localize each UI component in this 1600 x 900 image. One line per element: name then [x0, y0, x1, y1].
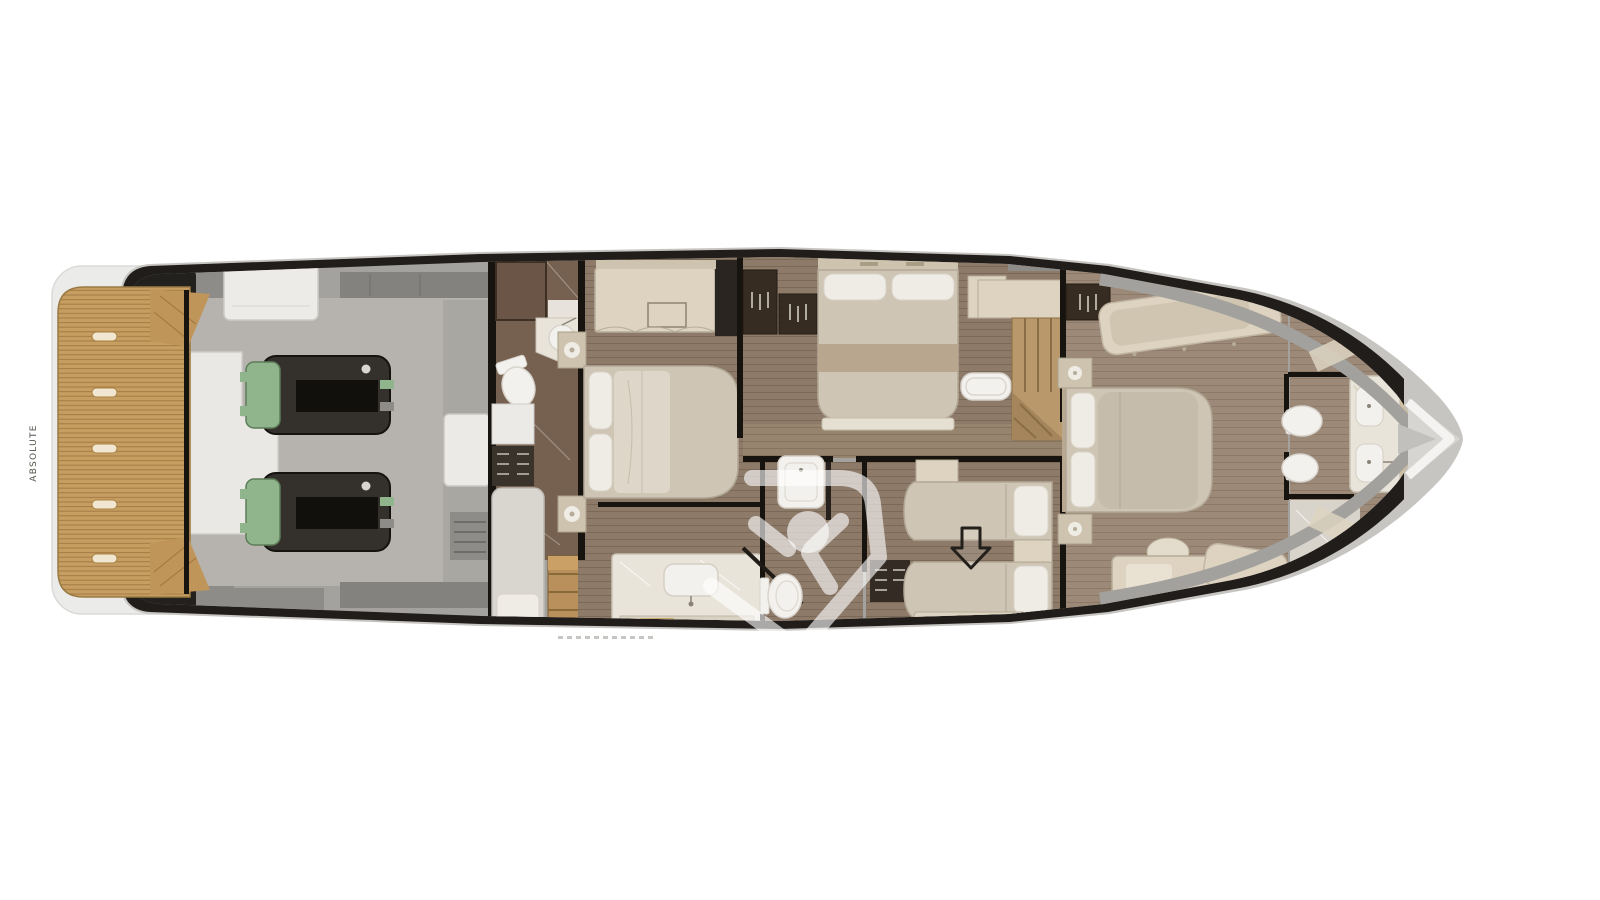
nightstand	[558, 332, 586, 368]
bath-shelf	[548, 300, 580, 318]
bathtub	[961, 373, 1011, 400]
bath-cabinet	[492, 404, 534, 444]
yacht-floorplan-image: ABSOLUTE	[0, 0, 1600, 900]
nightstand	[1058, 514, 1092, 544]
deck-hatch	[340, 582, 488, 608]
stair-cabinet	[978, 280, 1064, 318]
toilet	[760, 574, 802, 618]
dresser	[595, 268, 715, 332]
vent-unit	[450, 512, 490, 560]
engine-room	[186, 264, 490, 612]
staircase	[1012, 318, 1064, 440]
chaise-lounge	[492, 488, 544, 630]
shower	[496, 262, 546, 320]
vip-double-bed	[818, 258, 958, 430]
interior	[120, 240, 1440, 660]
toilet	[1282, 406, 1322, 436]
fine-print-marks	[558, 636, 654, 639]
floorplan-rendering	[0, 0, 1600, 900]
nightstand	[1058, 358, 1092, 388]
twin-bed	[904, 562, 1052, 618]
forward-double-bed	[1062, 388, 1212, 512]
master-double-bed	[584, 366, 738, 498]
nightstand	[1014, 540, 1052, 562]
deck-hatch	[340, 272, 488, 298]
platform-brand-label: ABSOLUTE	[29, 403, 43, 503]
starboard-engine	[240, 473, 394, 551]
wardrobe	[743, 270, 777, 334]
cockpit-locker	[224, 264, 318, 320]
wardrobe	[779, 294, 817, 334]
tv-wall	[715, 260, 739, 336]
twin-cabin	[862, 460, 1064, 638]
generator-unit	[444, 414, 490, 486]
port-engine	[240, 356, 394, 434]
transom-wall	[184, 290, 189, 594]
foot-bench	[822, 418, 954, 430]
swim-platform	[58, 287, 210, 597]
louver-cabinet	[492, 446, 534, 486]
midship-bulkhead	[737, 256, 743, 438]
bidet	[1282, 454, 1318, 482]
nightstand	[558, 496, 586, 532]
